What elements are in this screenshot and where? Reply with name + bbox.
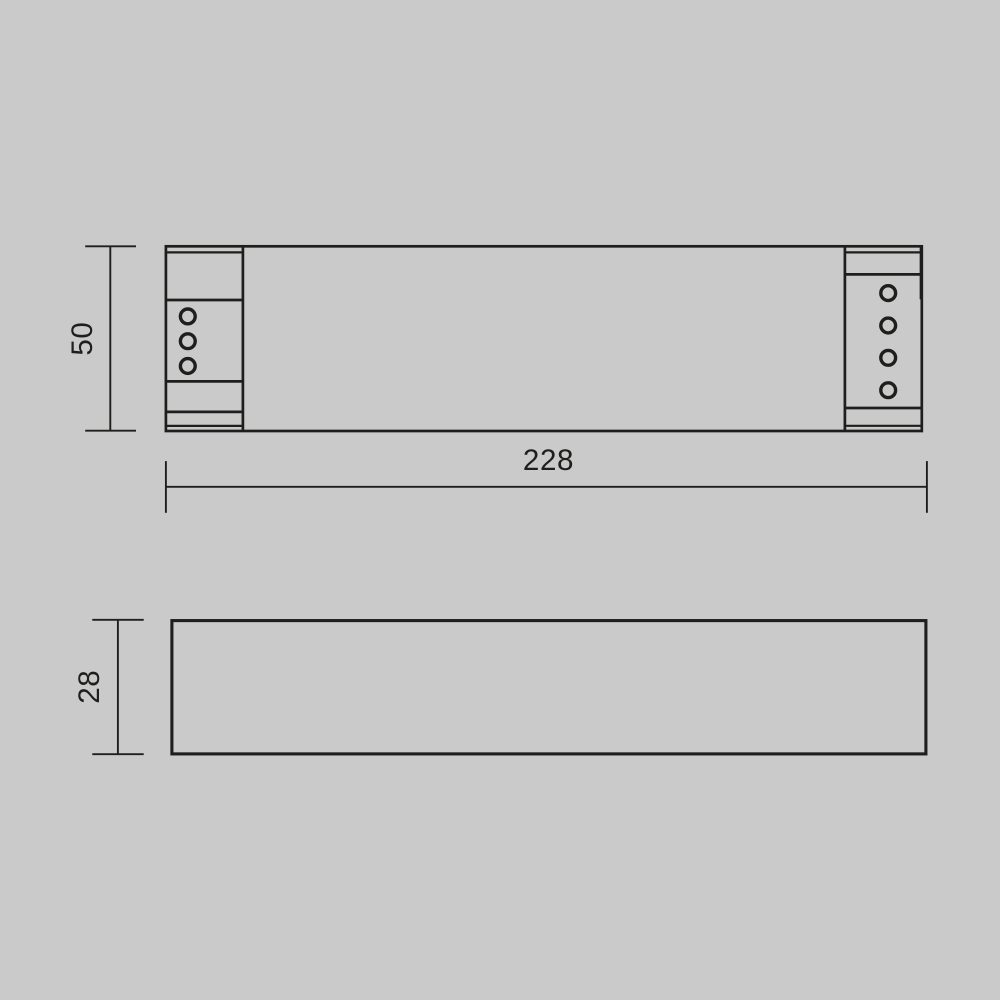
svg-text:50: 50 bbox=[66, 322, 99, 356]
svg-text:28: 28 bbox=[73, 670, 106, 704]
svg-text:228: 228 bbox=[523, 444, 574, 477]
